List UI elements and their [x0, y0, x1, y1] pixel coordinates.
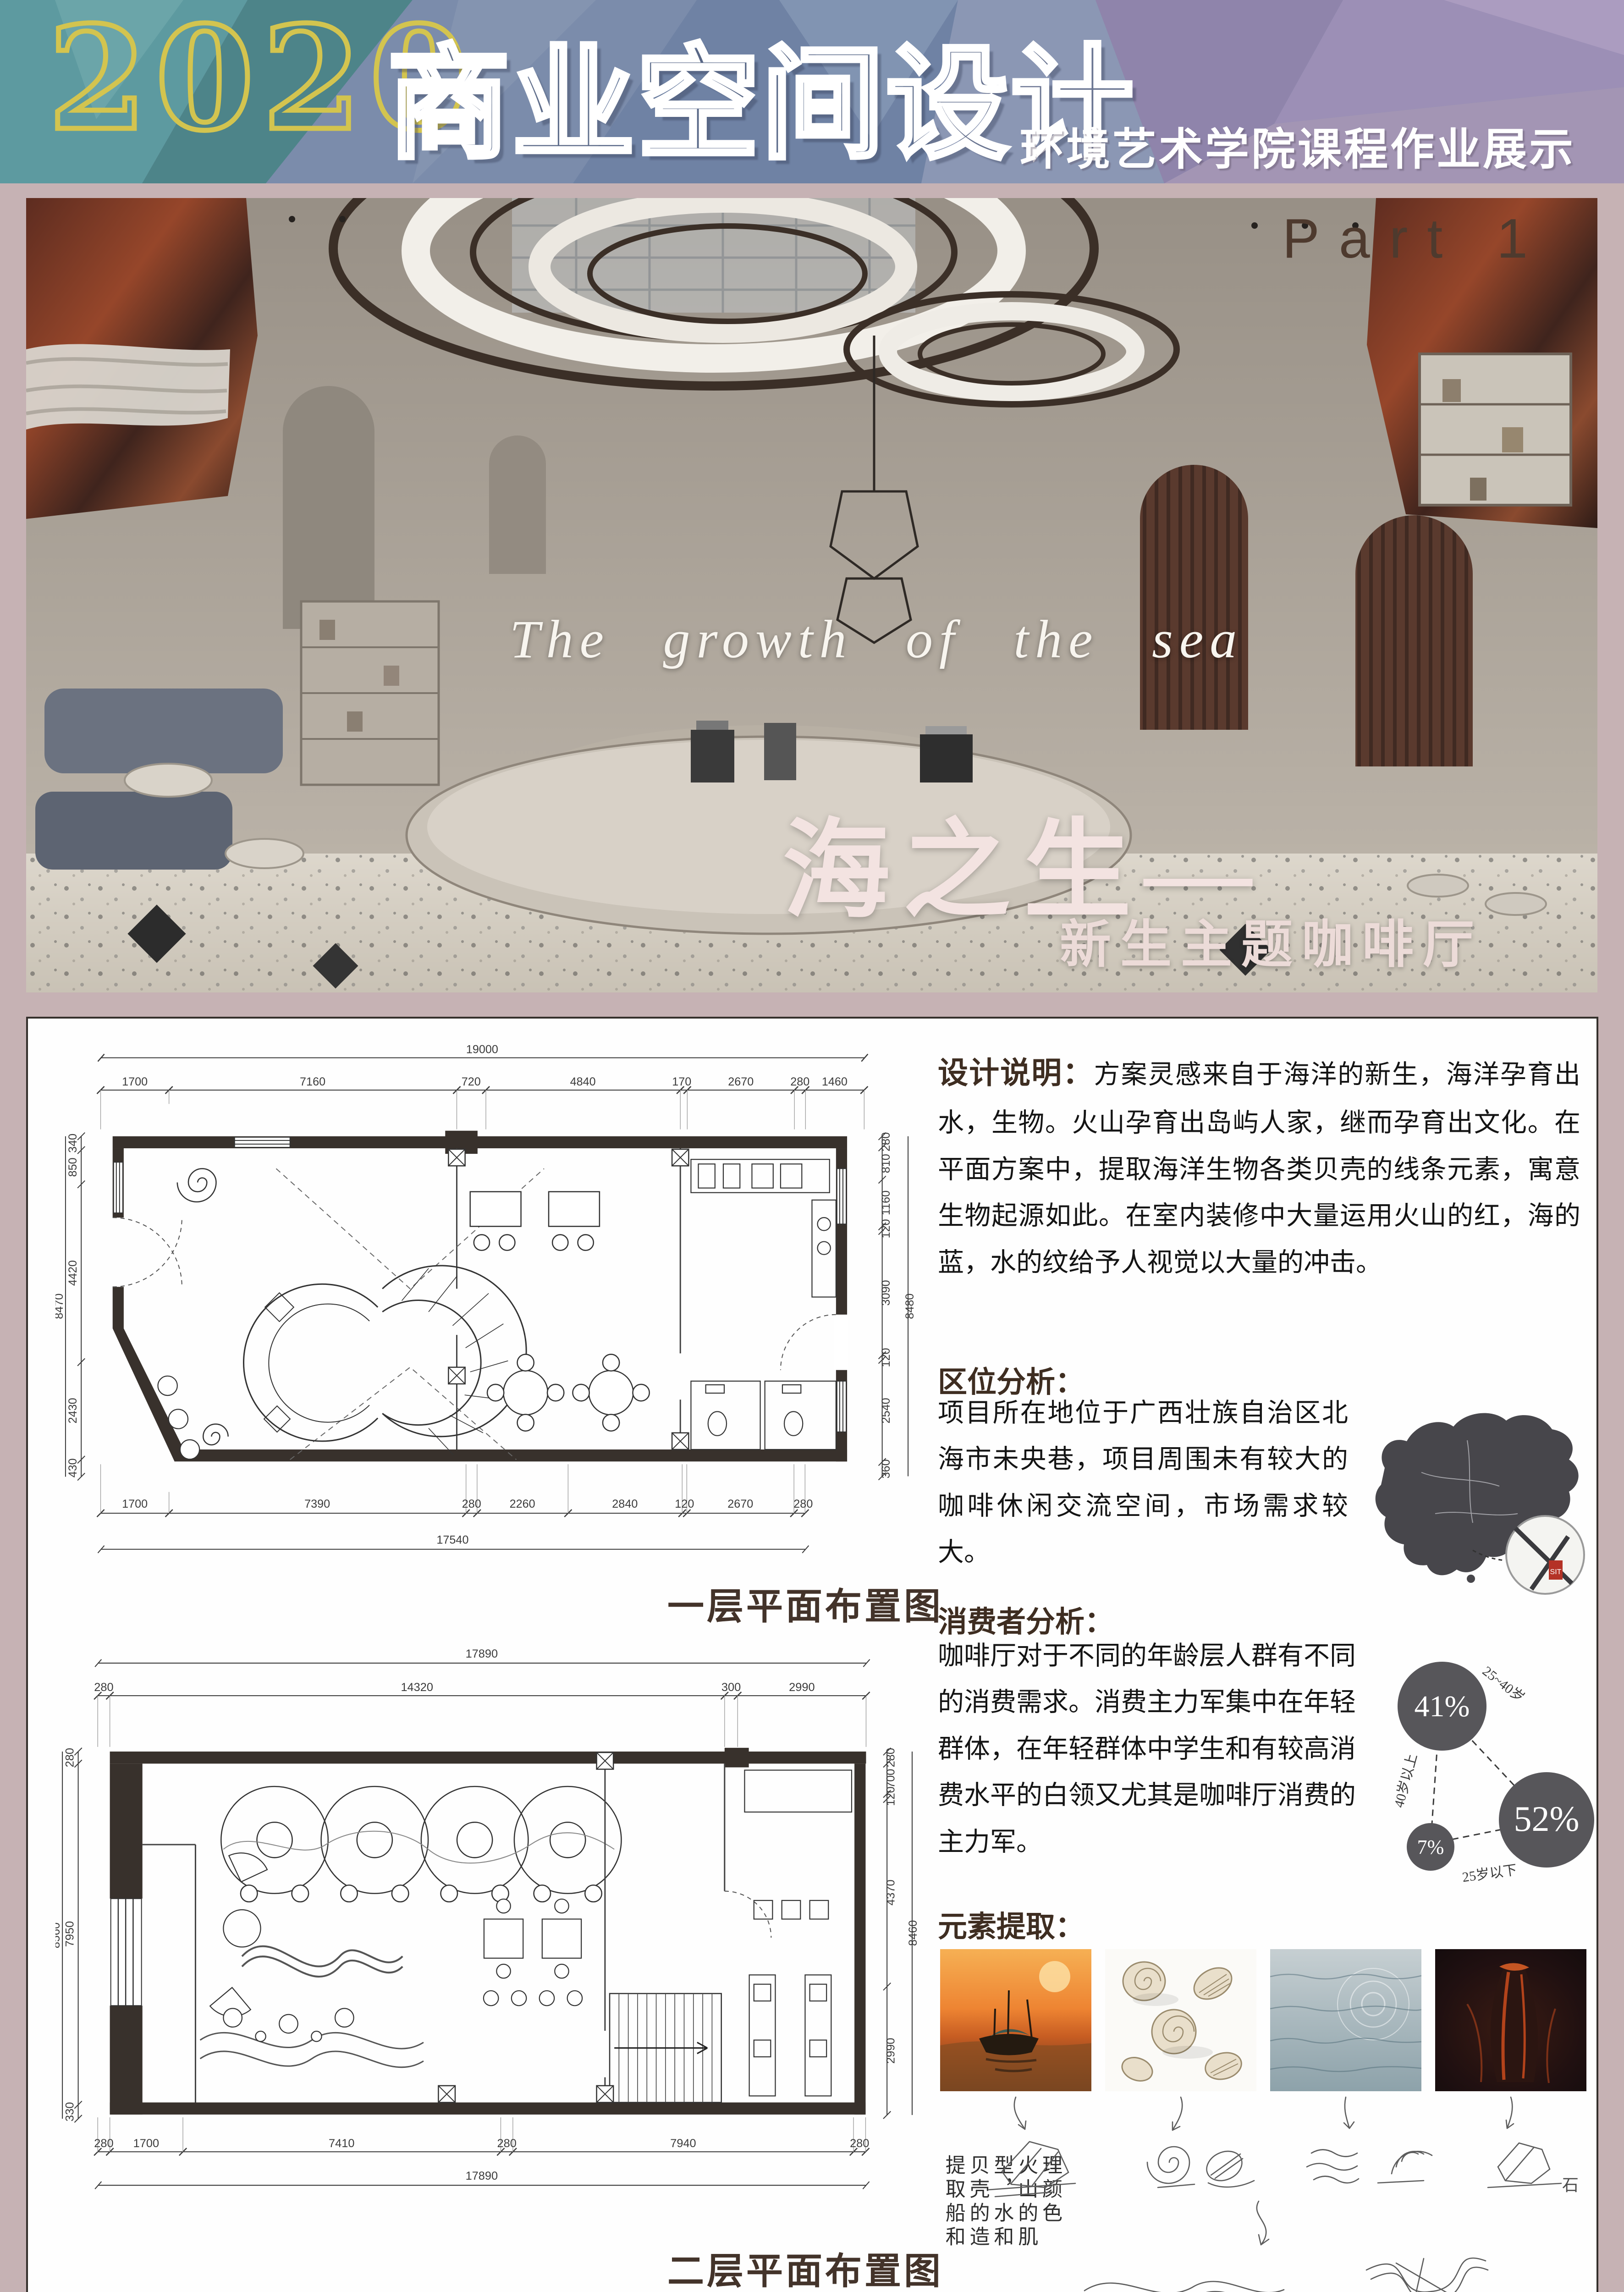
content-card: 19000 1700 7160 720 4840 170 2670 280 14…	[26, 1017, 1598, 2292]
dim-label: 2670	[727, 1498, 753, 1510]
dim-label: 360	[880, 1459, 892, 1478]
dim-label: 280	[497, 2137, 516, 2150]
dim-label: 3090	[880, 1280, 892, 1306]
dim-label: 4420	[66, 1260, 79, 1286]
dim-label: 280	[94, 1681, 113, 1694]
element-image-sunset-boat	[940, 1949, 1091, 2091]
dim-label: 280	[884, 1748, 897, 1767]
hero-title-en: The growth of the sea	[510, 608, 1243, 671]
elements-heading: 元素提取：	[938, 1903, 1085, 1945]
dim-label: 8480	[903, 1294, 916, 1319]
dim-label: 8560	[55, 1923, 62, 1948]
design-notes: 设计说明：方案灵感来自于海洋的新生，海洋孕育出水，生物。火山孕育出岛屿人家，继而…	[938, 1046, 1580, 1286]
floor-plan-2-label: 二层平面布置图	[667, 2242, 943, 2292]
dim-label: 7390	[304, 1498, 330, 1510]
dim-label: 1160	[880, 1190, 892, 1215]
dim-label: 1700	[122, 1075, 148, 1088]
dim-label: 810	[880, 1154, 892, 1173]
design-notes-heading: 设计说明：	[938, 1056, 1094, 1090]
dim-label: 1460	[822, 1075, 848, 1088]
hero-subtitle-cn: 新生主题咖啡厅	[1060, 903, 1483, 977]
dim-label: 7950	[63, 1921, 76, 1947]
bubble-41-label: 25~40岁	[1480, 1664, 1527, 1705]
dim-label: 2840	[612, 1498, 638, 1510]
dim-label: 280	[462, 1498, 481, 1510]
subtitle: 环境艺术学院课程作业展示	[1020, 114, 1575, 177]
dim-label: 4840	[570, 1075, 596, 1088]
dim-label: 7160	[300, 1075, 325, 1088]
china-map: SIT	[1353, 1399, 1596, 1596]
dim-label: 280	[790, 1075, 809, 1088]
bubble-52-label: 25岁以下	[1461, 1862, 1518, 1885]
bubble-41-value: 41%	[1415, 1690, 1470, 1723]
element-image-water-ripples	[1270, 1949, 1421, 2091]
dim-label: 2540	[880, 1398, 892, 1423]
dim-label: 280	[880, 1132, 892, 1152]
dim-label: 19000	[466, 1043, 498, 1056]
dim-label: 1700	[133, 2137, 159, 2150]
dim-label: 430	[66, 1458, 79, 1477]
dim-label: 280	[850, 2137, 869, 2150]
dim-label: 1700	[122, 1498, 148, 1510]
element-image-volcano	[1435, 1949, 1586, 2091]
dim-label: 300	[721, 1681, 741, 1694]
floor-plan-1: 19000 1700 7160 720 4840 170 2670 280 14…	[55, 1030, 917, 1626]
dim-label: 4370	[884, 1879, 897, 1905]
sketch-label-rock: 石	[1562, 2176, 1579, 2194]
dim-label: 2670	[728, 1075, 754, 1088]
dim-label: 7410	[329, 2137, 354, 2150]
dim-label: 2990	[884, 2038, 897, 2064]
dim-label: 280	[94, 2137, 113, 2150]
dim-label: 700	[884, 1769, 897, 1788]
part-label: Part 1	[1283, 206, 1547, 270]
dim-label: 850	[66, 1157, 79, 1177]
consumer-bubble-chart: 41% 52% 7% 25~40岁 40岁以上 25岁以下	[1355, 1624, 1600, 1903]
dim-label: 17540	[436, 1534, 468, 1547]
dim-label: 7940	[670, 2137, 696, 2150]
poster: 2020 商业空间设计 环境艺术学院课程作业展示	[0, 0, 1624, 2292]
dim-label: 280	[793, 1498, 813, 1510]
map-marker-label: SIT	[1550, 1568, 1562, 1576]
dim-label: 340	[66, 1134, 79, 1153]
dim-label: 120	[880, 1348, 892, 1367]
dim-label: 8460	[907, 1920, 917, 1946]
element-image-seashells	[1105, 1949, 1256, 2091]
dim-label: 120	[675, 1498, 694, 1510]
location-body: 项目所在地位于广西壮族自治区北海市未央巷，项目周围未有较大的咖啡休闲交流空间，市…	[938, 1390, 1348, 1576]
dim-label: 14320	[401, 1681, 433, 1694]
bubble-52-value: 52%	[1514, 1799, 1580, 1839]
dim-label: 8470	[55, 1294, 66, 1319]
dim-label: 2430	[66, 1398, 79, 1423]
dim-label: 17890	[466, 2170, 498, 2182]
dim-label: 120	[884, 1786, 897, 1806]
dim-label: 170	[672, 1075, 691, 1088]
dim-label: 2260	[510, 1498, 535, 1510]
bubble-7-value: 7%	[1417, 1836, 1444, 1858]
floor-plan-1-label: 一层平面布置图	[667, 1577, 943, 1630]
dim-label: 280	[63, 1748, 76, 1767]
element-sketches: 石 结合	[938, 2094, 1600, 2292]
dim-label: 330	[63, 2102, 76, 2121]
dim-label: 720	[462, 1075, 481, 1088]
bubble-7-label: 40岁以上	[1391, 1752, 1420, 1809]
design-notes-body: 方案灵感来自于海洋的新生，海洋孕育出水，生物。火山孕育出岛屿人家，继而孕育出文化…	[938, 1060, 1580, 1277]
dim-label: 2990	[789, 1681, 815, 1694]
consumer-body: 咖啡厅对于不同的年龄层人群有不同的消费需求。消费主力军集中在年轻群体，在年轻群体…	[938, 1633, 1356, 1865]
dim-label: 120	[880, 1219, 892, 1238]
hero-render: Part 1 The growth of the sea 海之生— 新生主题咖啡…	[26, 198, 1597, 992]
dim-label: 17890	[466, 1647, 498, 1660]
header-band: 2020 商业空间设计 环境艺术学院课程作业展示	[0, 0, 1624, 183]
floor-plan-2: 17890 280 14320 300 2990 280 7950 330 85…	[55, 1631, 917, 2240]
